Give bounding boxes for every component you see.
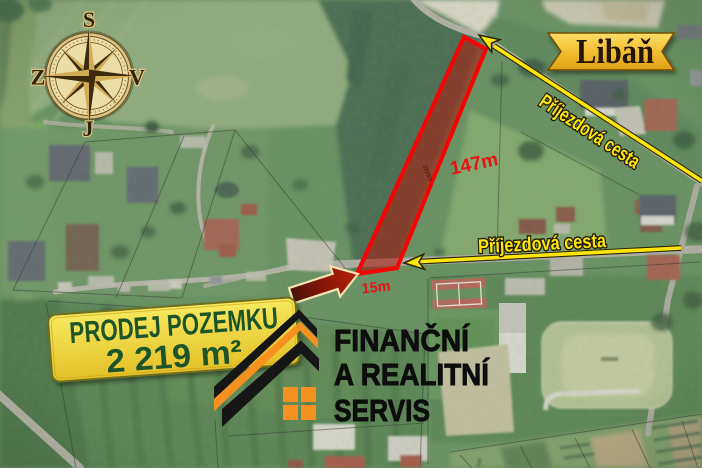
svg-text:Z: Z — [31, 65, 46, 90]
svg-text:A REALITNÍ: A REALITNÍ — [334, 357, 490, 392]
svg-text:V: V — [129, 65, 145, 90]
svg-text:Libáň: Libáň — [576, 32, 654, 71]
svg-text:15m: 15m — [361, 279, 392, 298]
svg-text:S: S — [83, 7, 95, 32]
svg-text:FINANČNÍ: FINANČNÍ — [334, 322, 470, 358]
svg-text:SERVIS: SERVIS — [334, 393, 430, 428]
svg-text:J: J — [83, 116, 94, 141]
